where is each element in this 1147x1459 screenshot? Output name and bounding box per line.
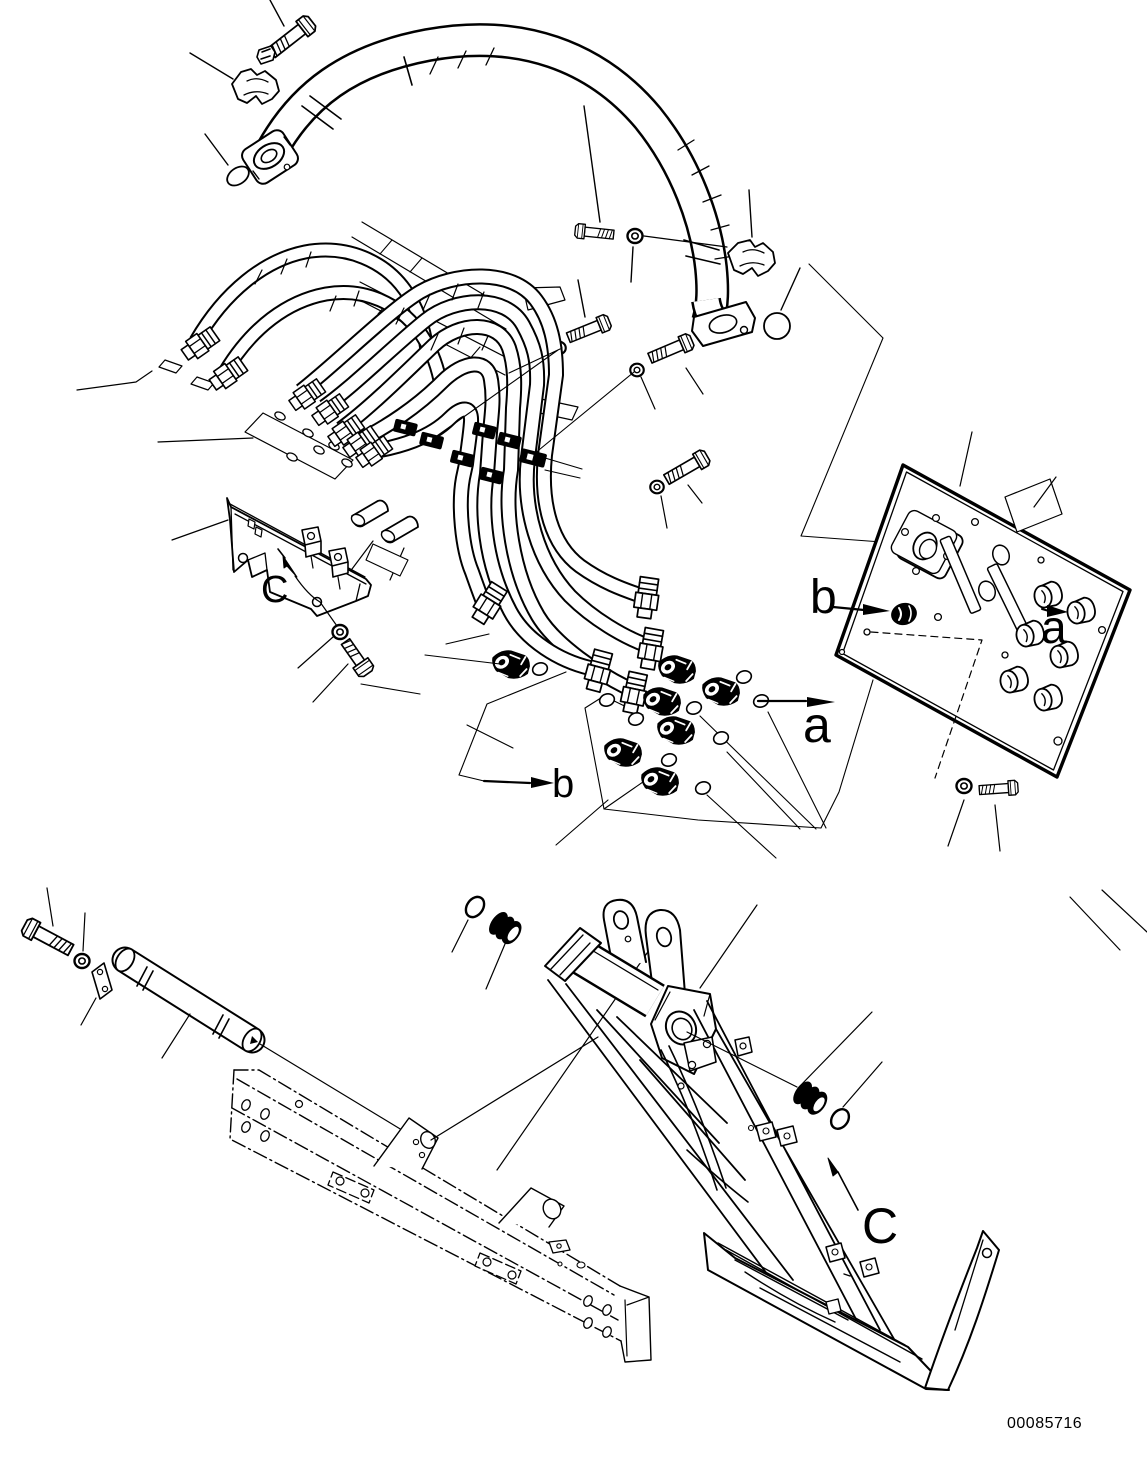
svg-text:C: C	[261, 569, 288, 611]
svg-text:b: b	[552, 762, 574, 806]
svg-text:b: b	[810, 571, 837, 624]
svg-text:00085716: 00085716	[1007, 1415, 1082, 1432]
svg-text:C: C	[862, 1198, 898, 1254]
